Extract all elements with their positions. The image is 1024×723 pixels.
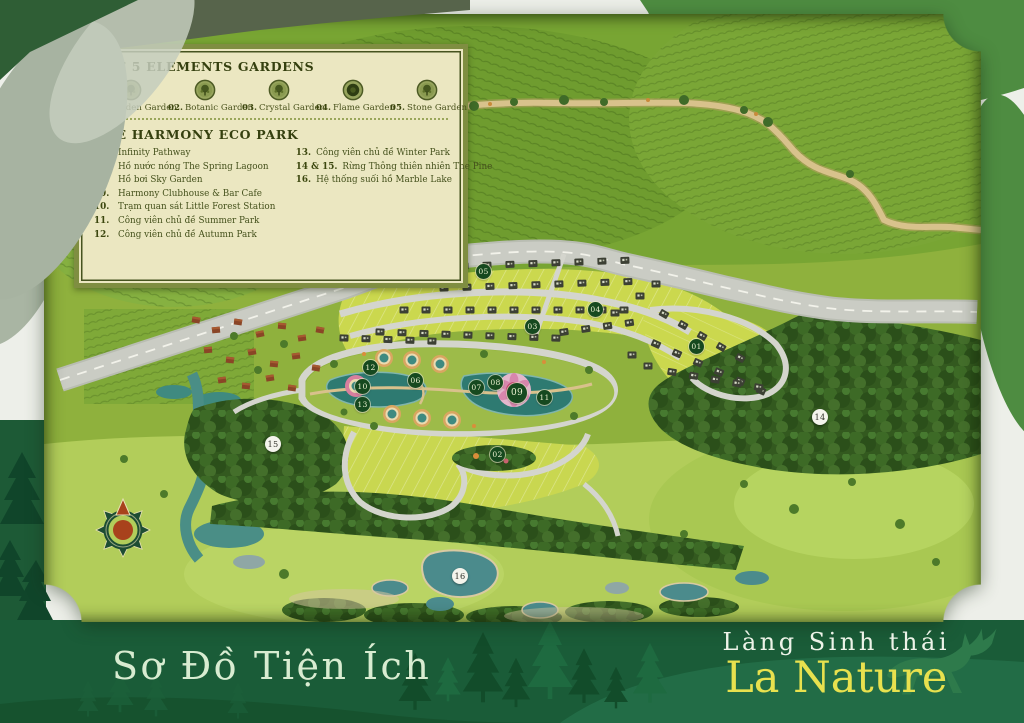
map-marker-11: 11	[537, 390, 552, 405]
map-marker-05: 05	[476, 264, 491, 279]
golden-garden-icon	[120, 79, 142, 101]
legend-gardens-title: THE 5 ELEMENTS GARDENS	[94, 59, 448, 74]
site-map: THE 5 ELEMENTS GARDENS 01.Golden Garden …	[44, 14, 981, 622]
list-item: 14 & 15.Rừng Thông thiên nhiên The Pine	[296, 161, 448, 175]
map-marker-10: 10	[355, 379, 370, 394]
list-item: 06.Infinity Pathway	[94, 147, 296, 161]
list-item: 13.Công viên chủ đề Winter Park	[296, 147, 448, 161]
flame-garden-icon	[342, 79, 364, 101]
map-marker-08: 08	[488, 375, 503, 390]
map-marker-15: 15	[265, 436, 281, 452]
list-item: 12.Công viên chủ đề Autumn Park	[94, 229, 296, 243]
list-item: 16.Hệ thống suối hồ Marble Lake	[296, 174, 448, 188]
map-marker-13: 13	[355, 397, 370, 412]
map-marker-07: 07	[469, 380, 484, 395]
map-marker-16: 16	[452, 568, 468, 584]
page-title: Sơ Đồ Tiện Ích	[112, 644, 431, 688]
brand-block: Làng Sinh thái La Nature	[723, 628, 950, 700]
map-marker-02: 02	[490, 447, 505, 462]
legend-item-crystal-garden: 03.Crystal Garden	[242, 79, 316, 113]
botanic-garden-icon	[194, 79, 216, 101]
list-item: 07.Hồ nước nóng The Spring Lagoon	[94, 161, 296, 175]
legend-item-golden-garden: 01.Golden Garden	[94, 79, 168, 113]
map-marker-09: 09	[507, 383, 527, 403]
crystal-garden-icon	[268, 79, 290, 101]
ecopark-list-right: 13.Công viên chủ đề Winter Park 14 & 15.…	[296, 147, 448, 242]
ecopark-list-left: 06.Infinity Pathway 07.Hồ nước nóng The …	[94, 147, 296, 242]
map-marker-12: 12	[363, 360, 378, 375]
stone-garden-icon	[416, 79, 438, 101]
list-item: 09.Harmony Clubhouse & Bar Cafe	[94, 188, 296, 202]
list-item: 08.Hồ bơi Sky Garden	[94, 174, 296, 188]
map-marker-14: 14	[812, 409, 828, 425]
page: THE 5 ELEMENTS GARDENS 01.Golden Garden …	[0, 0, 1024, 723]
brand-subtitle: Làng Sinh thái	[723, 628, 950, 656]
legend-ecopark-title: THE HARMONY ECO PARK	[94, 127, 448, 142]
map-marker-06: 06	[408, 373, 423, 388]
legend-divider	[94, 118, 448, 120]
map-marker-01: 01	[689, 339, 704, 354]
list-item: 10.Trạm quan sát Little Forest Station	[94, 201, 296, 215]
map-marker-03: 03	[525, 319, 540, 334]
list-item: 11.Công viên chủ đề Summer Park	[94, 215, 296, 229]
legend-item-stone-garden: 05.Stone Garden	[390, 79, 464, 113]
legend-item-botanic-garden: 02.Botanic Garden	[168, 79, 242, 113]
legend-panel: THE 5 ELEMENTS GARDENS 01.Golden Garden …	[74, 44, 468, 288]
map-marker-04: 04	[588, 302, 603, 317]
gardens-row: 01.Golden Garden 02.Botanic Garden 03.Cr…	[94, 79, 448, 113]
legend-item-flame-garden: 04.Flame Garden	[316, 79, 390, 113]
brand-name: La Nature	[723, 656, 950, 700]
